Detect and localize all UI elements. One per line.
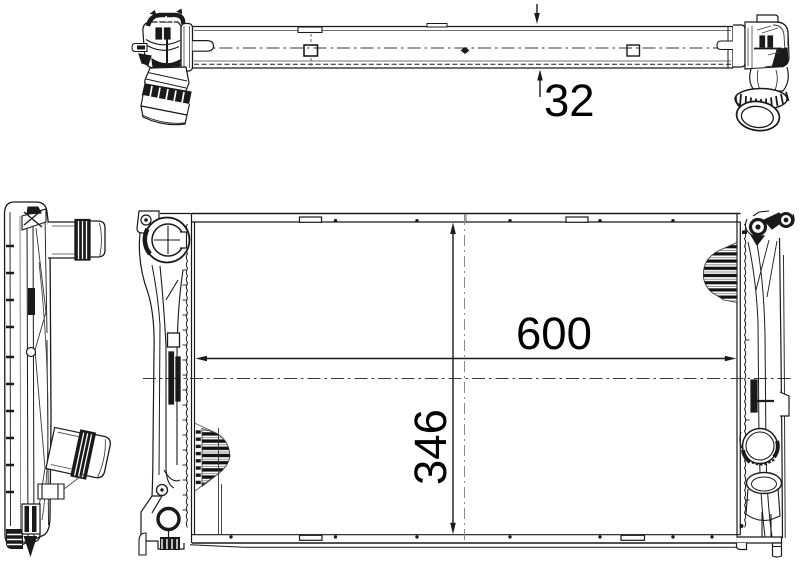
svg-text:346: 346 <box>405 409 456 485</box>
svg-text:32: 32 <box>544 75 595 126</box>
svg-text:600: 600 <box>516 308 592 359</box>
